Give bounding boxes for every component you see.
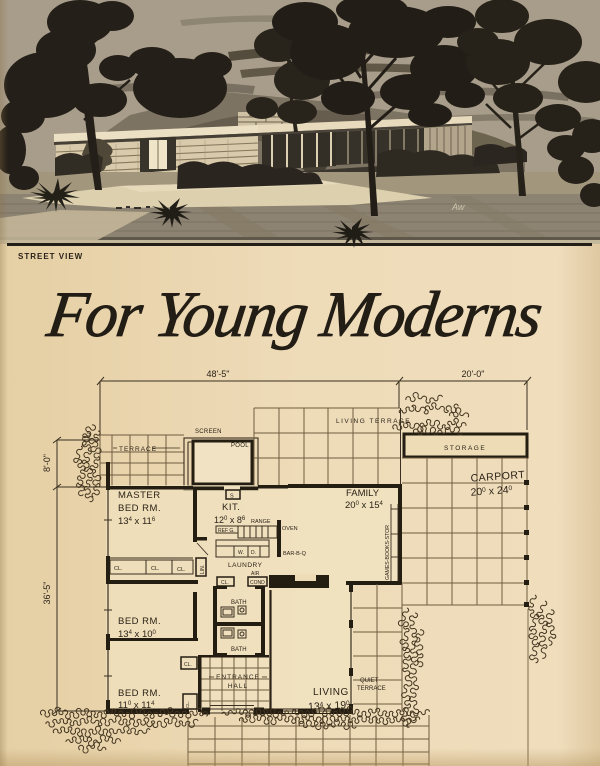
svg-text:POOL: POOL [231,443,249,449]
svg-text:200 x 154: 200 x 154 [345,500,384,511]
svg-text:FAMILY: FAMILY [346,488,380,499]
svg-text:AIR: AIR [251,571,260,577]
svg-text:48'-5": 48'-5" [207,369,230,379]
svg-text:CL.: CL. [221,580,229,586]
svg-text:BAR-B-Q: BAR-B-Q [283,551,307,557]
svg-text:Aw: Aw [451,202,465,212]
svg-text:TERRACE: TERRACE [357,686,386,692]
svg-text:8'-0": 8'-0" [42,454,52,472]
svg-text:BED RM.: BED RM. [118,688,161,699]
svg-text:LIN.: LIN. [200,565,206,574]
svg-text:D.: D. [251,550,256,556]
svg-text:COND: COND [250,580,265,586]
svg-text:REF G.: REF G. [218,528,235,534]
svg-text:MASTER: MASTER [118,490,161,501]
svg-text:QUIET: QUIET [360,678,379,684]
svg-text:OVEN: OVEN [282,526,298,532]
svg-text:BATH: BATH [231,600,247,606]
svg-text:134 x 116: 134 x 116 [118,516,156,527]
svg-text:BATH: BATH [231,647,247,653]
svg-text:RANGE: RANGE [251,519,271,525]
svg-text:TERRACE: TERRACE [119,446,157,453]
svg-text:BED RM.: BED RM. [118,616,161,627]
svg-text:STREET VIEW: STREET VIEW [18,252,83,261]
svg-text:S: S [230,494,234,500]
svg-text:ENTRANCE: ENTRANCE [216,674,260,681]
svg-text:W.: W. [238,550,244,556]
svg-text:SCREEN: SCREEN [195,429,222,435]
svg-text:36'-5": 36'-5" [42,582,52,605]
svg-text:CL.: CL. [177,567,186,573]
svg-text:HALL: HALL [228,683,248,690]
svg-text:STORAGE: STORAGE [444,445,486,452]
svg-text:CL.: CL. [184,662,192,668]
svg-text:KIT.: KIT. [222,502,240,513]
svg-text:BED RM.: BED RM. [118,503,161,514]
svg-text:LIVING: LIVING [313,687,349,698]
svg-text:CL.: CL. [185,701,190,708]
svg-text:20'-0": 20'-0" [462,369,485,379]
svg-text:GAMES-BOOKS-STOR: GAMES-BOOKS-STOR [385,525,391,580]
svg-text:120 x 86: 120 x 86 [214,515,246,525]
svg-text:For Young Moderns: For Young Moderns [42,279,547,351]
svg-text:LAUNDRY: LAUNDRY [228,562,263,569]
svg-text:CL.: CL. [151,566,160,572]
svg-text:CL.: CL. [114,566,123,572]
